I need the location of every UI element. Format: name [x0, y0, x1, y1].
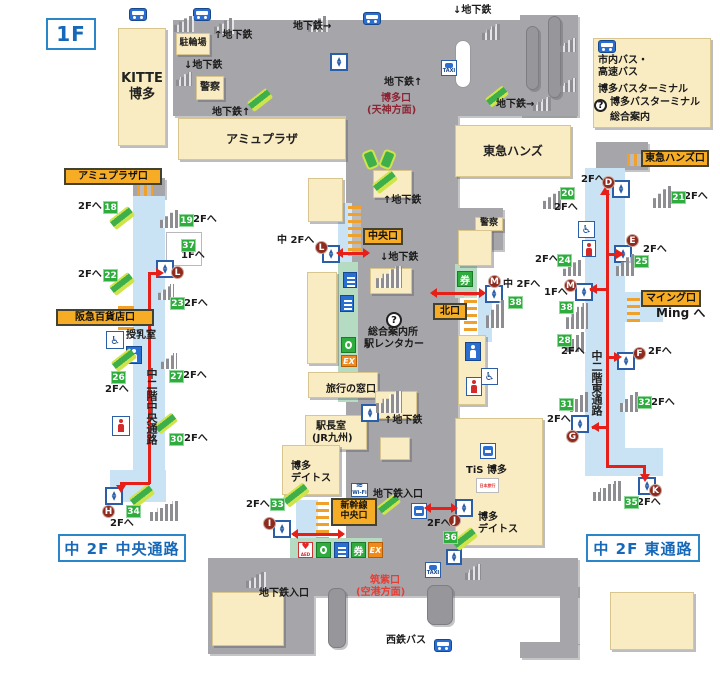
exit-badge-amuplaza: アミュプラザ口: [64, 168, 162, 185]
subway-label: ↑地下鉄: [214, 30, 252, 42]
mezz-central-walkway-label: 中 2F 中央通路: [58, 534, 186, 562]
mezz-east-corridor-label: 中二階東通路: [588, 350, 604, 428]
subway-label: 地下鉄→: [496, 99, 534, 111]
restroom-women-icon: [466, 377, 482, 396]
route-line: [606, 465, 646, 468]
wheelchair-icon: [481, 368, 498, 385]
kiosk-block: [458, 230, 492, 266]
stair-badge-38: 38: [559, 301, 574, 314]
escalator-pair-icon: [362, 148, 396, 168]
to-2f-label: 2Fへ: [547, 414, 571, 426]
ticket-gate-ming: [627, 298, 640, 324]
hakata-exit-sub-label: (天神方面): [367, 105, 416, 117]
stair-badge-38: 38: [508, 296, 523, 309]
to-2f-label: 2Fへ: [246, 499, 270, 511]
stair-badge-36: 36: [443, 531, 458, 544]
pillar: [548, 16, 561, 98]
service-counter-icon: [480, 443, 496, 459]
taxi-icon: TAXI: [425, 562, 441, 578]
to-2f-label: 2Fへ: [110, 518, 134, 530]
ticket-machine-icon: 券: [457, 271, 473, 287]
exit-badge-shinkansen-chuo: 新幹線 中央口: [331, 498, 377, 526]
to-2f-label: 2Fへ: [78, 201, 102, 213]
wifi-icon: Wi-Fi: [351, 483, 368, 497]
to-2f-label: 2Fへ: [78, 269, 102, 281]
elevator-icon: [330, 53, 348, 71]
bus-icon: [129, 8, 147, 21]
south-building: [212, 592, 284, 646]
stationmaster-label: 駅長室: [316, 421, 346, 433]
pillar: [526, 26, 539, 90]
route-arrow: [156, 268, 169, 278]
to-2f-label: 2Fへ: [184, 433, 208, 445]
stair-badge-34: 34: [126, 505, 141, 518]
midori-ticket-machine-icon: [341, 337, 356, 353]
legend-bus-terminal-label: 博多バスターミナル: [598, 84, 688, 96]
floor-label: 1F: [46, 18, 96, 50]
to-2f-label: 2Fへ: [184, 298, 208, 310]
fare-adjustment-icon: [340, 295, 354, 312]
stair-badge-19: 19: [179, 214, 194, 227]
route-arrow-both: [293, 533, 343, 536]
bus-icon: [193, 8, 211, 21]
elevator-badge-M: M: [564, 279, 577, 292]
exit-badge-ming: マイング口: [641, 290, 701, 307]
exit-badge-kita: 北口: [433, 303, 467, 320]
stair-badge-22: 22: [103, 269, 118, 282]
information-icon: ?: [594, 99, 607, 112]
elevator-badge-F: F: [633, 347, 646, 360]
elevator-badge-I: I: [263, 517, 276, 530]
to-2f-label: 2Fへ: [648, 346, 672, 358]
ex-ticket-icon: EX: [341, 355, 357, 367]
elevator-badge-M: M: [488, 275, 501, 288]
to-2f-label: 2Fへ: [535, 254, 559, 266]
ticket-gate-east: [627, 154, 641, 166]
stair-badge-33: 33: [270, 498, 285, 511]
ming-label: Ming へ: [656, 307, 705, 321]
stair-badge-21: 21: [671, 191, 686, 204]
pillar: [328, 588, 346, 648]
building-amu-plaza: アミュプラザ: [178, 118, 346, 160]
subway-label: ↑地下鉄: [384, 415, 422, 427]
mezz-east-foot: [585, 448, 663, 476]
travel-counter-label: 旅行の窓口: [326, 384, 376, 396]
stairs-icon: [593, 481, 621, 501]
elevator-badge-D: D: [602, 176, 615, 189]
elevator-badge-K: K: [649, 484, 662, 497]
deitos-east-label: 博多 デイトス: [478, 512, 518, 535]
nishitetsu-bus-label: 西鉄バス: [386, 635, 426, 647]
kiosk-block: [308, 178, 343, 222]
legend-city-bus-label: 市内バス・: [598, 55, 648, 67]
kiosk-block: [307, 272, 337, 364]
station-floor-map: KITTE 博多アミュプラザ東急ハンズ駐輪場警察警察TAXITAXI??AED券…: [0, 0, 720, 674]
stair-badge-28: 28: [557, 334, 572, 347]
chikushi-exit-label: 筑紫口: [370, 575, 400, 587]
route-arrow: [640, 474, 650, 487]
bus-icon: [434, 639, 452, 652]
subway-label: ↓地下鉄: [184, 60, 222, 72]
pillar: [427, 585, 453, 625]
subway-label: 地下鉄↑: [384, 77, 422, 89]
to-2f-label: 2Fへ: [105, 384, 129, 396]
hakata-exit-label: 博多口: [381, 93, 411, 105]
mezz-east-walkway-label: 中 2F 東通路: [586, 534, 700, 562]
route-arrow-both: [426, 507, 456, 510]
subway-entrance-label: 地下鉄入口: [259, 588, 309, 600]
restroom-women-icon: [112, 416, 130, 436]
stair-badge-30: 30: [169, 433, 184, 446]
taxi-icon: TAXI: [441, 60, 457, 76]
to-2f-label: 2Fへ: [183, 370, 207, 382]
restroom-icon: [465, 342, 481, 361]
to-2f-label: 2Fへ: [561, 346, 585, 358]
stair-badge-32: 32: [637, 396, 652, 409]
route-arrow: [584, 284, 597, 294]
wheelchair-icon: [106, 331, 124, 349]
chikushi-exit-sub-label: (空港方面): [356, 587, 405, 599]
restroom-women-icon: [582, 240, 596, 257]
to-mezz-label: 中 2Fへ: [277, 235, 314, 247]
midori-ticket-machine-icon: [316, 542, 331, 558]
stair-badge-27: 27: [169, 370, 184, 383]
elevator-badge-G: G: [566, 430, 579, 443]
building-kitte-hakata: KITTE 博多: [118, 28, 166, 146]
mezz-central-corridor-label: 中二階中央通路: [143, 368, 159, 458]
elevator-badge-L: L: [171, 266, 184, 279]
stair-badge-37: 37: [181, 239, 196, 252]
ticket-counter-icon: [334, 542, 349, 558]
elevator-badge-J: J: [448, 514, 461, 527]
to-2f-label: 2Fへ: [651, 397, 675, 409]
exit-badge-hankyu: 阪急百貨店口: [56, 309, 154, 326]
to-2f-label: 2Fへ: [637, 497, 661, 509]
deitos-west-label: 博多 デイトス: [291, 461, 331, 484]
aed-icon: AED: [298, 542, 313, 558]
exit-badge-chuo: 中央口: [363, 228, 403, 245]
bus-icon: [598, 40, 616, 53]
pillar-white: [455, 40, 471, 88]
to-2f-label: 2Fへ: [554, 202, 578, 214]
south-wall: [560, 585, 578, 643]
stationmaster-sub-label: (JR九州): [312, 433, 353, 445]
information-icon: ?: [386, 312, 402, 328]
stairs-icon: [653, 186, 673, 208]
elevator-badge-L: L: [315, 241, 328, 254]
subway-label: 地下鉄↑: [212, 107, 250, 119]
info-center-label: 総合案内所: [368, 327, 418, 339]
route-arrow: [116, 485, 126, 498]
bicycle-parking: 駐輪場: [176, 33, 210, 55]
wheelchair-icon: [578, 221, 595, 238]
stair-badge-20: 20: [560, 187, 575, 200]
kiosk-block: [380, 437, 410, 460]
route-arrow-both: [338, 252, 368, 255]
nippon-travel-logo: 日本旅行: [476, 478, 499, 493]
building-tokyu-hands: 東急ハンズ: [455, 125, 571, 177]
tis-hakata-label: TiS 博多: [466, 465, 507, 477]
nursing-room-label: 授乳室: [126, 330, 156, 342]
rentacar-label: 駅レンタカー: [364, 339, 424, 351]
stair-badge-26: 26: [111, 371, 126, 384]
stair-badge-24: 24: [557, 254, 572, 267]
ex-ticket-icon: EX: [368, 542, 383, 558]
route-arrow-both: [432, 292, 484, 295]
atm-icon: [343, 272, 357, 288]
to-mezz-label: 中 2Fへ: [503, 279, 540, 291]
legend-highway-bus-label: 高速バス: [598, 67, 638, 79]
south-building: [610, 592, 694, 650]
route-arrow: [616, 249, 629, 259]
subway-label: ↓地下鉄: [453, 5, 491, 17]
elevator-badge-E: E: [626, 234, 639, 247]
subway-label: ↑地下鉄: [383, 195, 421, 207]
stair-badge-31: 31: [559, 398, 574, 411]
stair-badge-25: 25: [634, 255, 649, 268]
subway-label: ↓地下鉄: [380, 252, 418, 264]
exit-badge-tokyu-hands: 東急ハンズ口: [641, 150, 709, 167]
to-2f-label: 2Fへ: [193, 214, 217, 226]
police-box-west: 警察: [196, 76, 224, 100]
to-2f-label: 2Fへ: [643, 244, 667, 256]
elevator-badge-H: H: [102, 505, 115, 518]
route-arrow: [614, 352, 627, 362]
stair-badge-35: 35: [624, 496, 639, 509]
bus-icon: [363, 12, 381, 25]
legend-info-label: 総合案内: [610, 112, 650, 124]
ticket-gate-chuo: [348, 206, 361, 256]
subway-label: 地下鉄→: [293, 21, 331, 33]
stair-badge-23: 23: [170, 297, 185, 310]
ticket-machine-icon: 券: [351, 542, 366, 558]
stair-badge-18: 18: [103, 201, 118, 214]
police-box-north: 警察: [475, 217, 503, 231]
south-wall: [520, 642, 578, 658]
subway-entrance-label: 地下鉄入口: [373, 489, 423, 501]
stairs-icon: [150, 501, 180, 521]
to-2f-label: 2Fへ: [684, 191, 708, 203]
legend-bus-terminal-info-label: 博多バスターミナル: [610, 97, 700, 109]
elevator-icon: [446, 549, 462, 565]
